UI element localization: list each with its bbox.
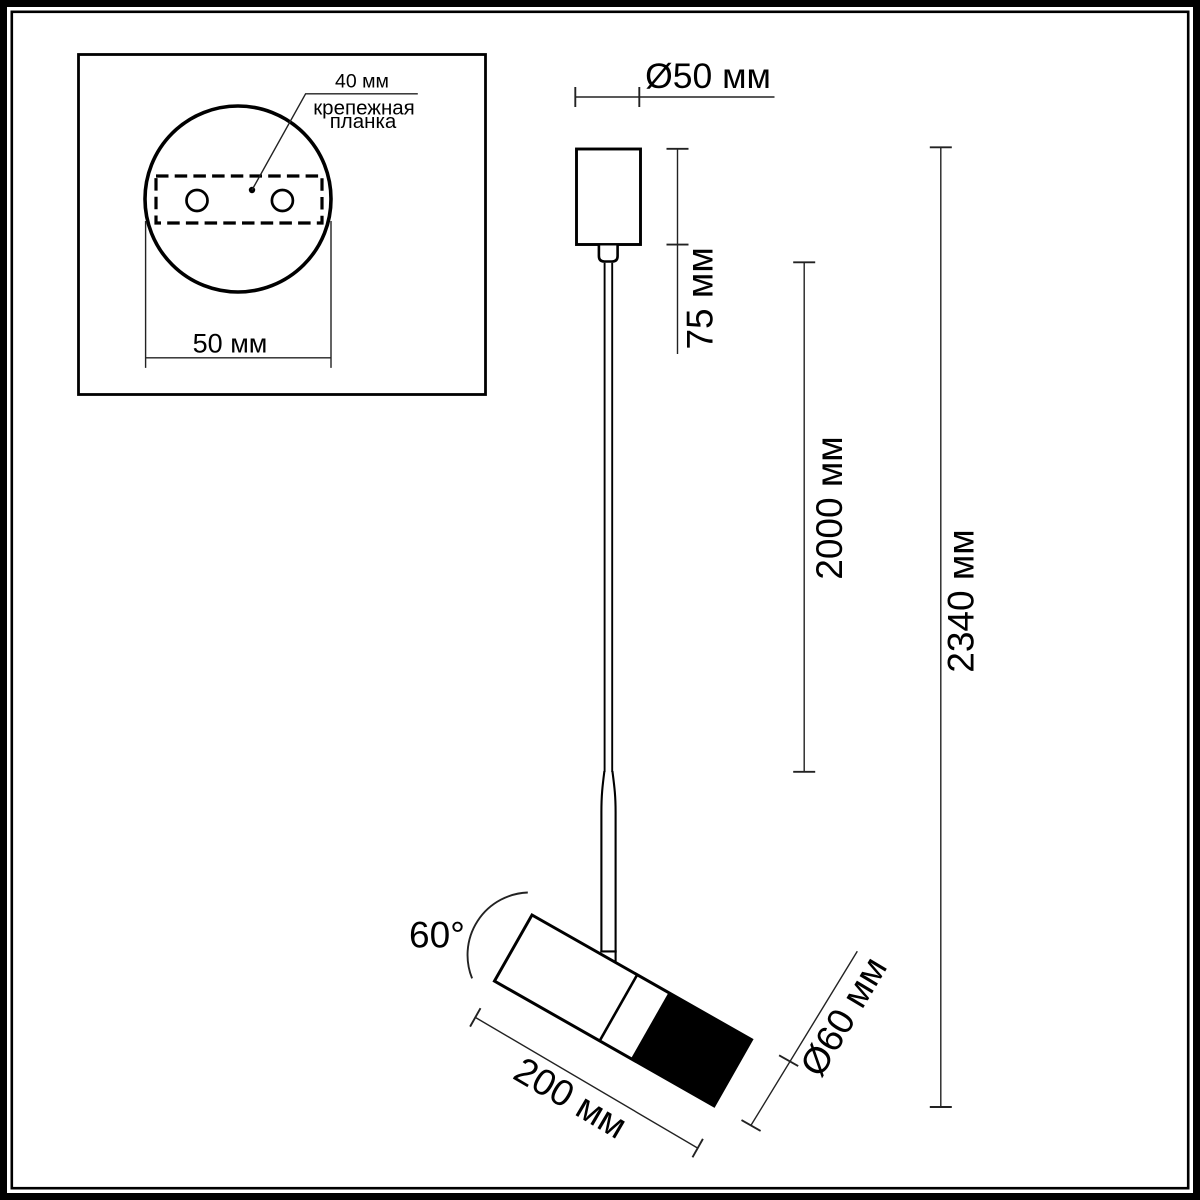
svg-text:планка: планка xyxy=(330,110,397,133)
svg-text:75 мм: 75 мм xyxy=(679,247,720,349)
svg-text:2000 мм: 2000 мм xyxy=(809,436,850,579)
svg-text:2340 мм: 2340 мм xyxy=(940,529,981,672)
svg-text:40 мм: 40 мм xyxy=(335,71,389,93)
svg-text:60°: 60° xyxy=(409,915,465,956)
svg-text:Ø50 мм: Ø50 мм xyxy=(645,56,771,96)
svg-text:50 мм: 50 мм xyxy=(193,328,268,358)
